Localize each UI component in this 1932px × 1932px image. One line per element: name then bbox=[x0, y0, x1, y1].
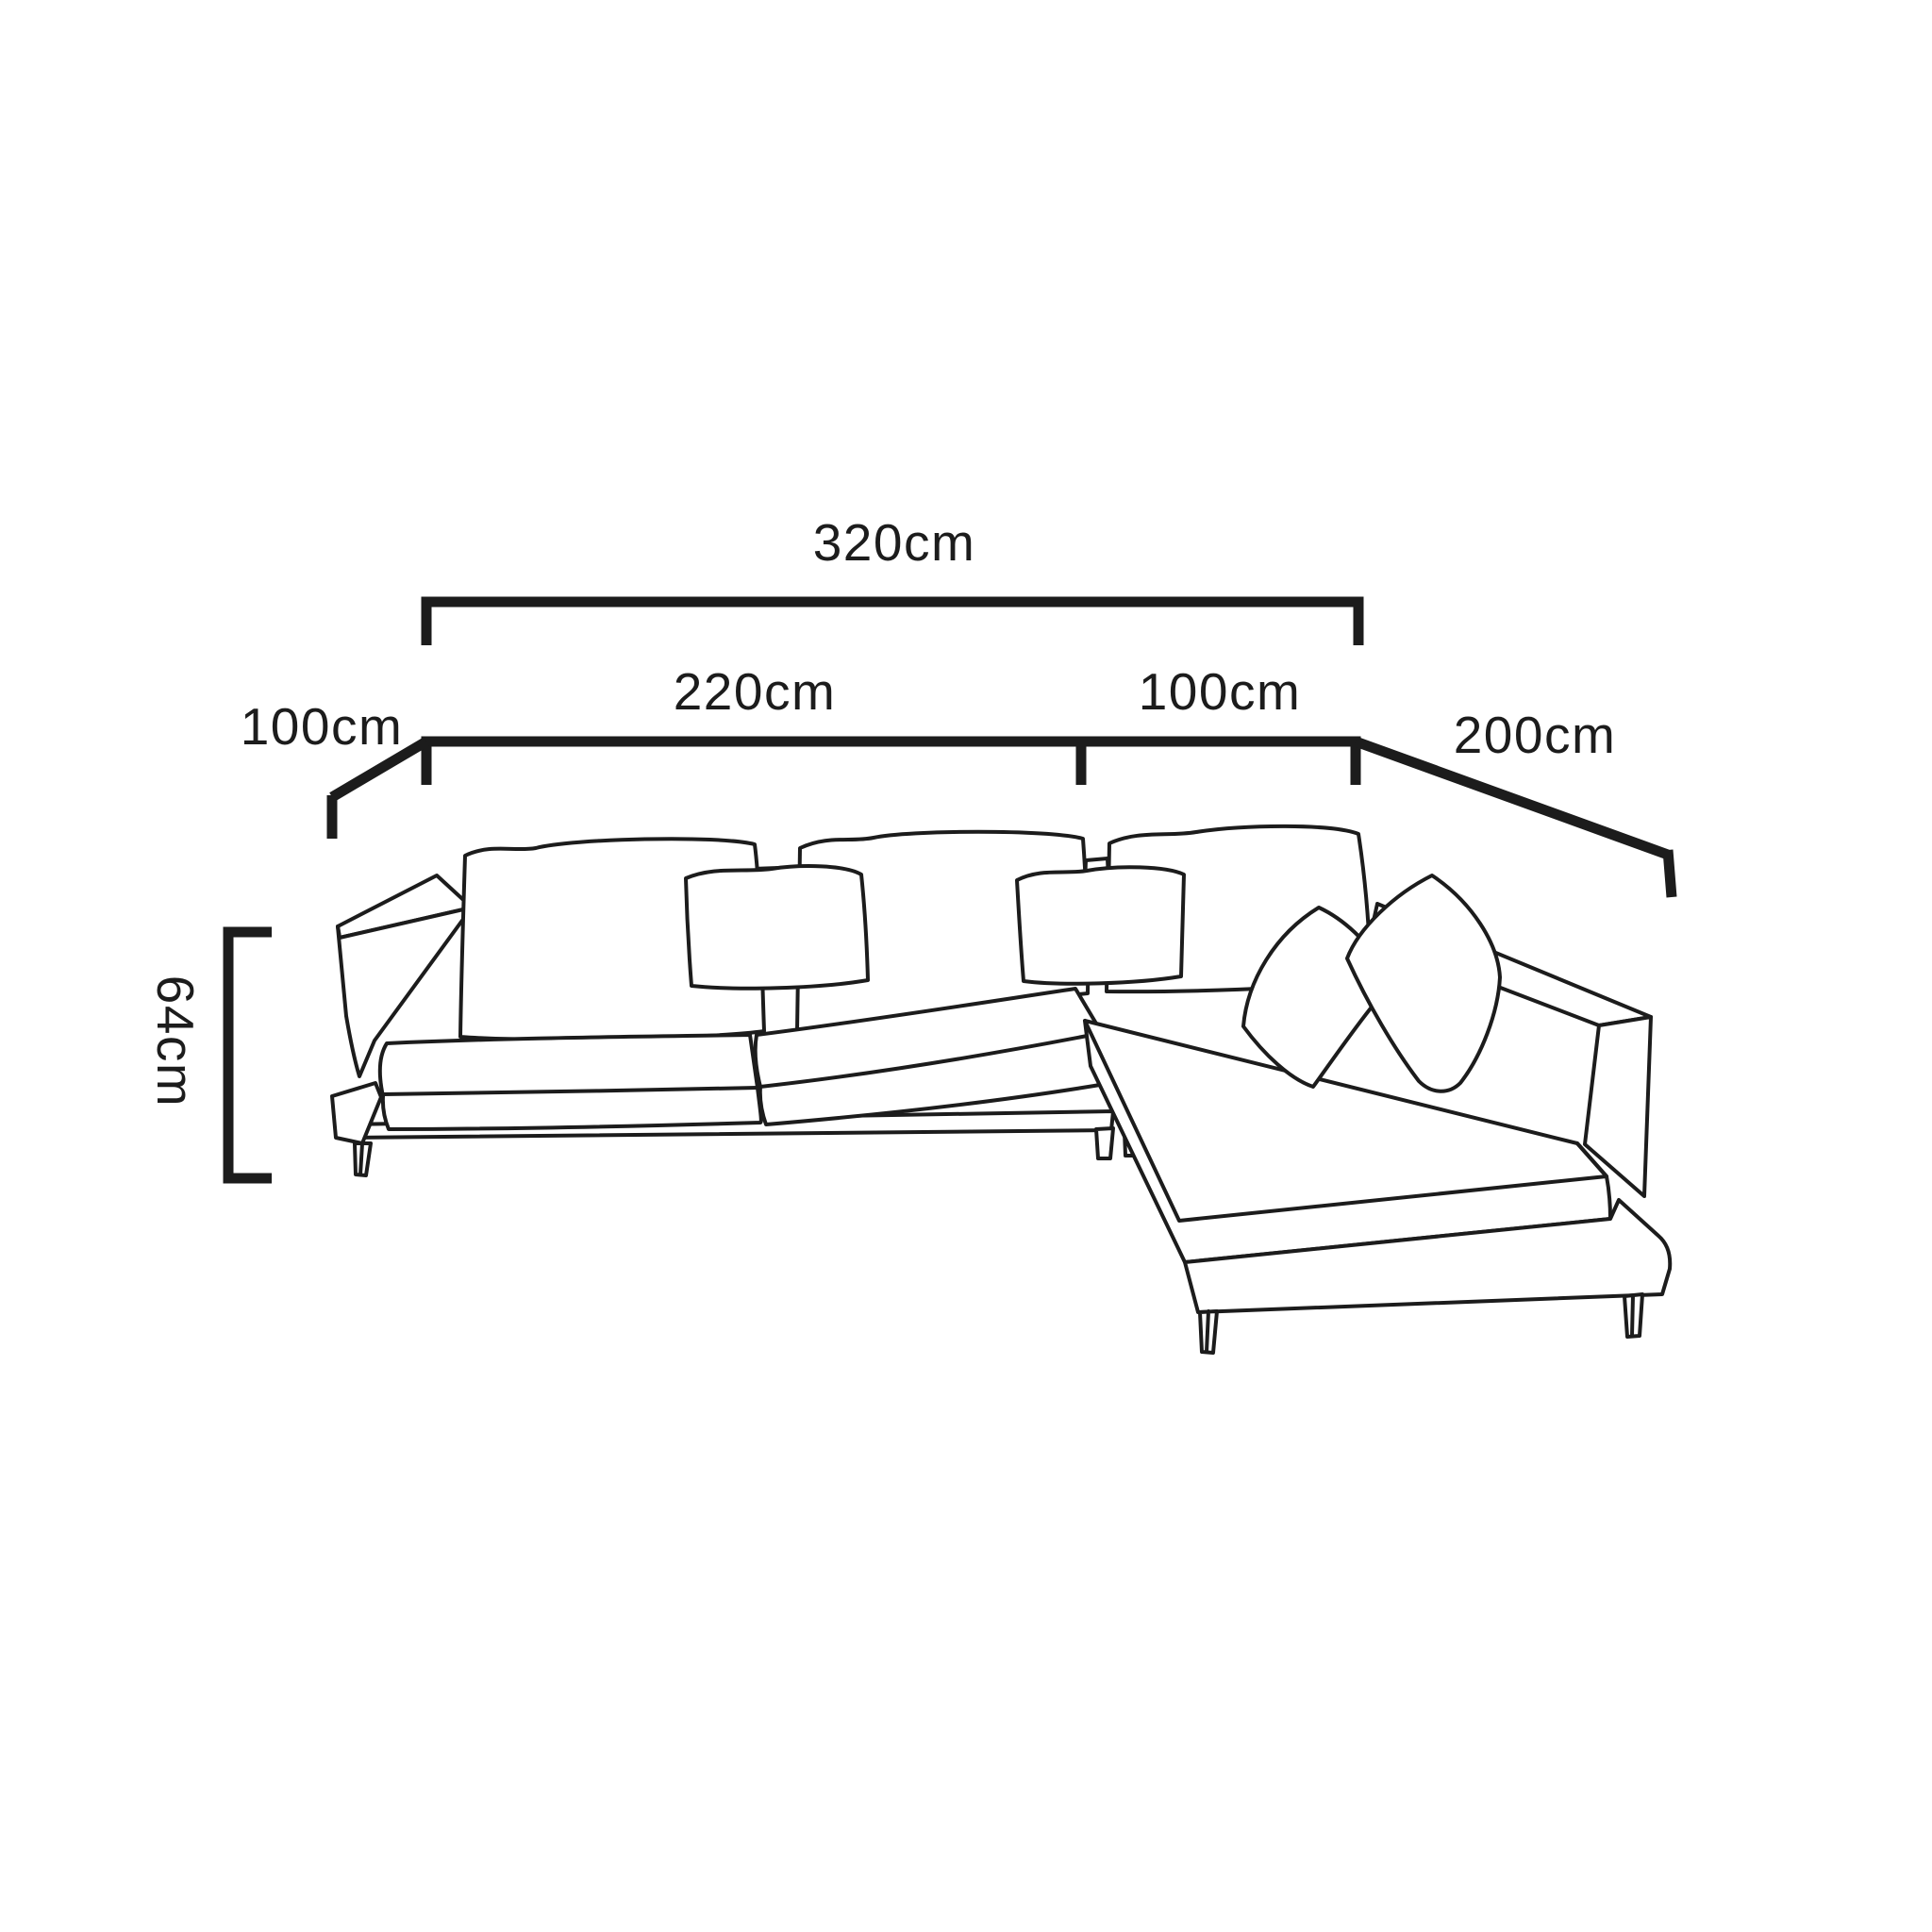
sofa-dimension-diagram: 320cm 220cm 100cm 100cm 200cm 64cm bbox=[0, 0, 1932, 1932]
diagram-canvas: 320cm 220cm 100cm 100cm 200cm 64cm bbox=[0, 0, 1932, 1932]
sofa-illustration bbox=[332, 826, 1670, 1353]
main-leg-left bbox=[355, 1143, 371, 1175]
dim-label-side-depth: 100cm bbox=[241, 697, 404, 756]
seat-cushion-1 bbox=[380, 1035, 761, 1129]
dim-bracket-total-width bbox=[426, 602, 1358, 645]
dim-label-corner-section-width: 100cm bbox=[1139, 662, 1302, 721]
chaise-pillow-2 bbox=[1347, 875, 1500, 1091]
chaise-leg-left bbox=[1200, 1311, 1217, 1353]
dim-label-left-section-width: 220cm bbox=[674, 662, 837, 721]
dim-line-left-depth bbox=[332, 741, 426, 839]
dim-line-chaise-length bbox=[1356, 741, 1672, 897]
throw-pillow-2 bbox=[1017, 867, 1184, 984]
throw-pillow-1 bbox=[686, 866, 868, 989]
dim-line-sections bbox=[426, 741, 1356, 785]
dim-label-chaise-length: 200cm bbox=[1454, 706, 1617, 764]
chaise-leg-right bbox=[1624, 1294, 1642, 1337]
dim-label-total-width: 320cm bbox=[813, 513, 976, 572]
dim-bracket-seat-height bbox=[228, 932, 272, 1178]
dim-label-seat-height: 64cm bbox=[146, 975, 205, 1108]
main-leg-right-1 bbox=[1096, 1128, 1113, 1158]
